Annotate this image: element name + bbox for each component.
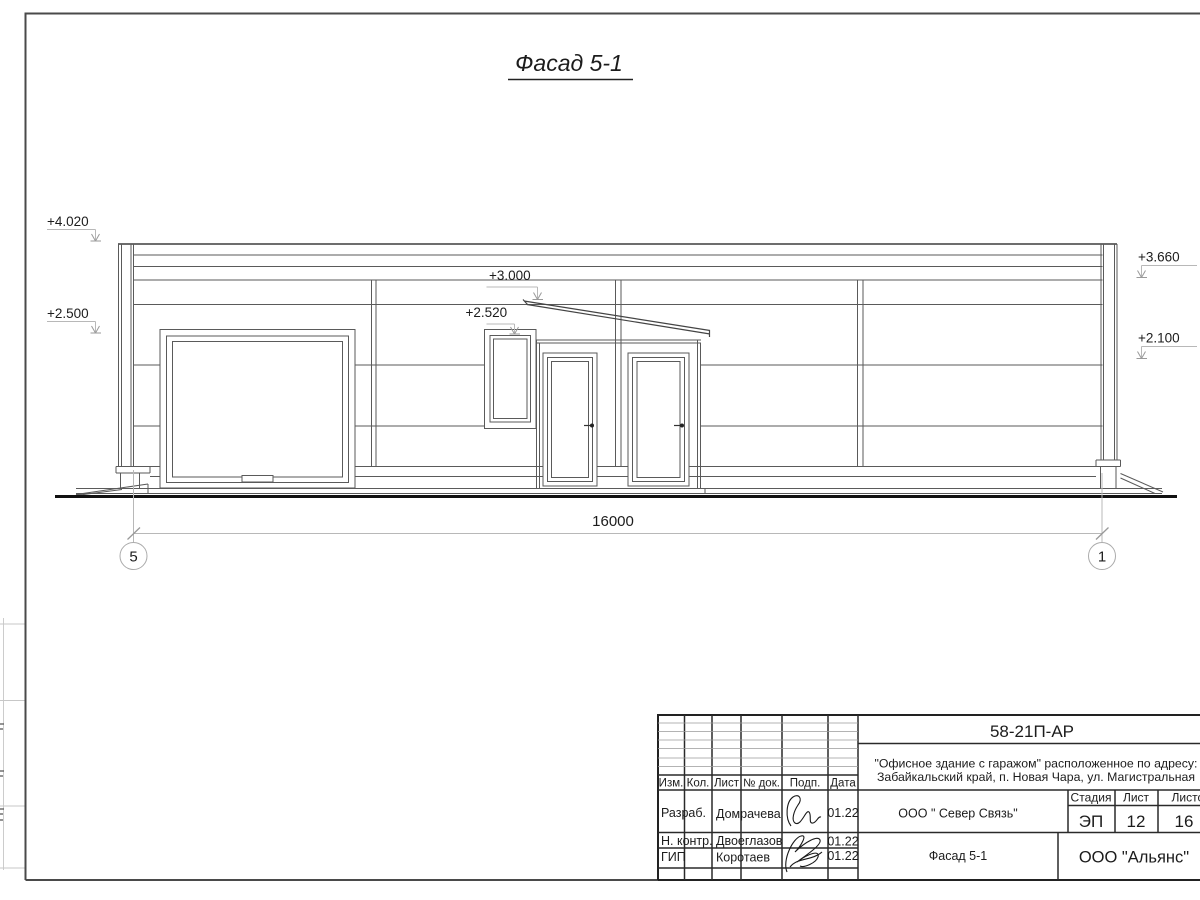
- stage-label: Стадия: [1071, 791, 1112, 805]
- row-date: 01.22: [827, 849, 858, 863]
- garage-door-handle: [242, 476, 273, 483]
- col-izm: Изм.: [659, 778, 684, 790]
- col-data: Дата: [830, 778, 856, 790]
- dimension-text: 16000: [592, 513, 634, 530]
- col-kol: Кол.: [687, 778, 710, 790]
- row-name: Коротаев: [716, 851, 770, 865]
- drawing-sheet: Фасад 5-1: [0, 0, 1200, 900]
- col-list: Лист: [714, 778, 740, 790]
- sheets-value: 16: [1175, 812, 1194, 831]
- drawing-title-text: Фасад 5-1: [515, 50, 623, 76]
- axis-bubble-left: 5: [120, 543, 147, 570]
- sheet-name: Фасад 5-1: [929, 849, 988, 863]
- elevation-label: +2.520: [466, 305, 508, 320]
- sheet-label: Лист: [1123, 791, 1150, 805]
- row-role: Н. контр.: [661, 834, 713, 848]
- doc-code: 58-21П-АР: [990, 722, 1074, 741]
- elevation-label: +4.020: [47, 214, 89, 229]
- axis-number: 1: [1098, 549, 1106, 566]
- elevation-label: +2.100: [1138, 331, 1180, 346]
- elevation-label: +3.000: [489, 268, 531, 283]
- drawing-title: Фасад 5-1: [508, 50, 633, 80]
- row-date: 01.22: [827, 806, 858, 820]
- row-date: 01.22: [827, 835, 858, 849]
- row-role: ГИП: [661, 850, 686, 864]
- customer-name: ООО " Север Связь": [898, 807, 1017, 821]
- company-name: ООО "Альянс": [1079, 849, 1189, 867]
- project-line1: "Офисное здание с гаражом" расположенное…: [875, 757, 1198, 771]
- axis-number: 5: [129, 549, 137, 566]
- sheet-value: 12: [1127, 812, 1146, 831]
- row-name: Двоеглазов: [716, 834, 783, 848]
- row-role: Разраб.: [661, 806, 706, 820]
- col-doc: № док.: [743, 778, 780, 790]
- elevation-label: +3.660: [1138, 250, 1180, 265]
- axis-bubble-right: 1: [1089, 543, 1116, 570]
- project-line2: Забайкальский край, п. Новая Чара, ул. М…: [877, 770, 1195, 784]
- col-podp: Подп.: [790, 778, 821, 790]
- stage-value: ЭП: [1079, 812, 1103, 831]
- sheets-label: Листов: [1172, 791, 1200, 805]
- row-name: Домрачева: [716, 807, 781, 821]
- elevation-label: +2.500: [47, 306, 89, 321]
